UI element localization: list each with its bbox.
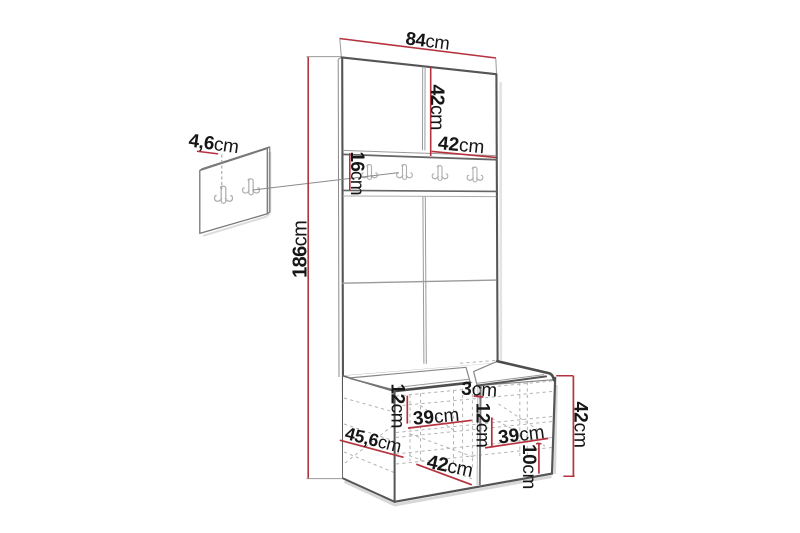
svg-text:42cm: 42cm	[437, 133, 485, 158]
svg-text:42cm: 42cm	[570, 402, 591, 448]
svg-text:12cm: 12cm	[387, 384, 408, 428]
svg-text:10cm: 10cm	[518, 444, 539, 489]
svg-text:16cm: 16cm	[346, 152, 367, 195]
svg-text:186cm: 186cm	[289, 221, 311, 278]
svg-text:42cm: 42cm	[426, 85, 448, 130]
svg-text:3cm: 3cm	[461, 379, 498, 402]
svg-text:39cm: 39cm	[412, 405, 460, 430]
svg-text:12cm: 12cm	[472, 403, 493, 447]
